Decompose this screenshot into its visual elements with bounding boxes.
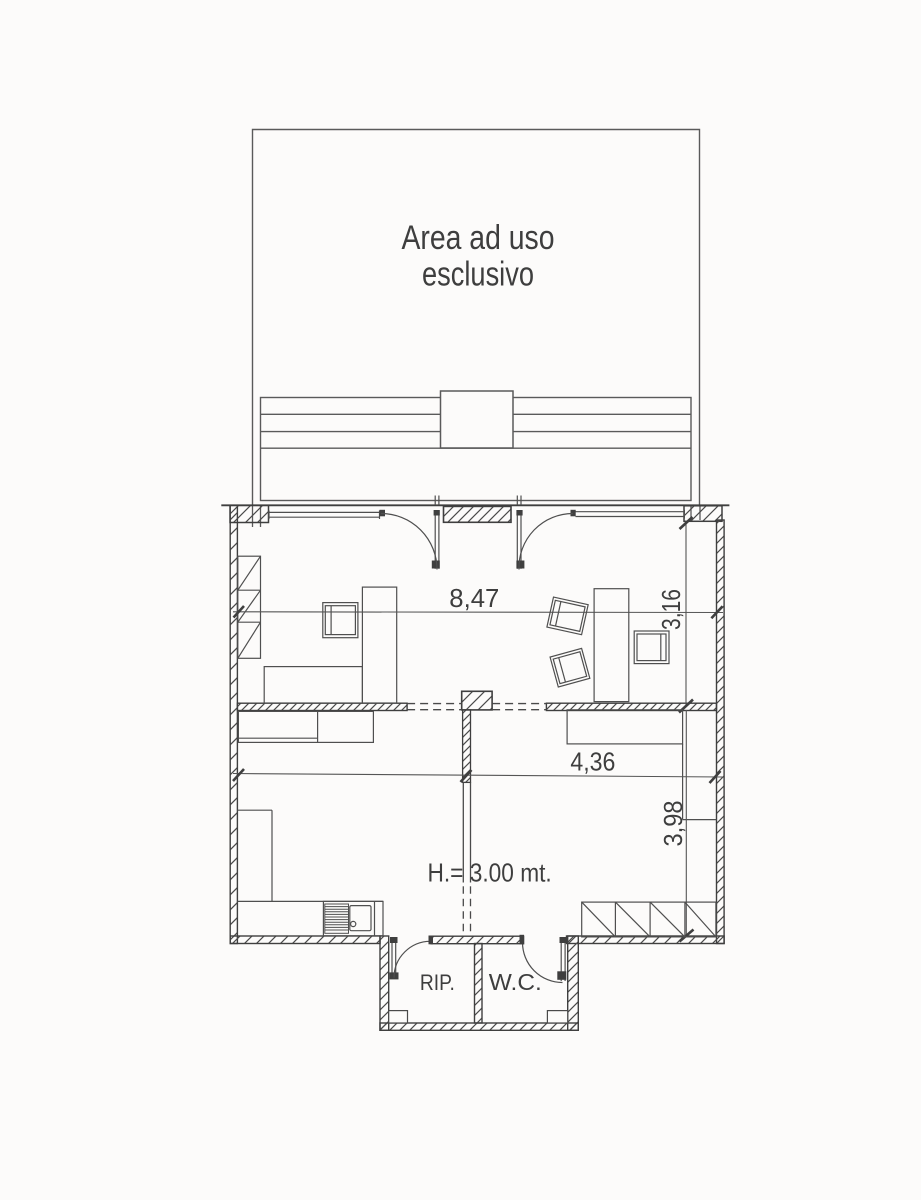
svg-text:Area ad uso: Area ad uso <box>402 219 555 257</box>
svg-text:H.= 3.00 mt.: H.= 3.00 mt. <box>428 858 552 888</box>
svg-text:W.C.: W.C. <box>489 969 542 995</box>
svg-text:3,16: 3,16 <box>656 589 686 630</box>
svg-text:8,47: 8,47 <box>449 583 499 613</box>
svg-text:esclusivo: esclusivo <box>422 256 534 294</box>
svg-text:3,98: 3,98 <box>658 801 688 847</box>
svg-text:4,36: 4,36 <box>570 746 615 776</box>
svg-text:RIP.: RIP. <box>420 970 455 995</box>
